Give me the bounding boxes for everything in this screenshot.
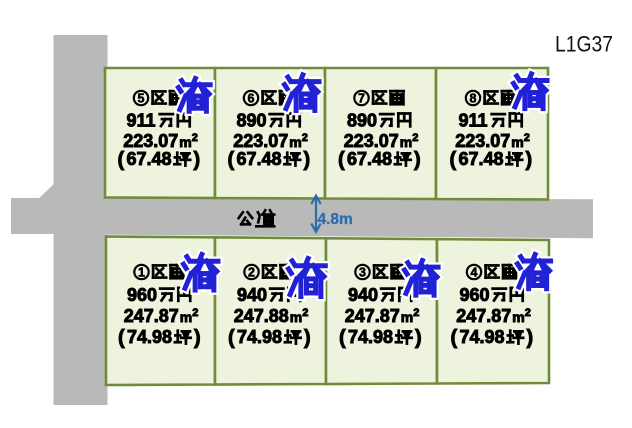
svg-text:): ): [194, 327, 201, 349]
svg-text:74.98: 74.98: [127, 327, 172, 347]
svg-text:6: 6: [248, 91, 255, 105]
svg-text:): ): [526, 149, 533, 171]
svg-text:67.48: 67.48: [236, 149, 281, 169]
svg-text:8: 8: [470, 91, 477, 105]
svg-text:911: 911: [126, 110, 155, 130]
svg-text:): ): [414, 149, 421, 171]
svg-text:m: m: [511, 134, 523, 150]
svg-text:2: 2: [524, 132, 530, 144]
svg-text:2: 2: [525, 307, 531, 319]
svg-text:(: (: [450, 327, 457, 349]
svg-text:(: (: [117, 149, 124, 171]
svg-text:223.07: 223.07: [455, 131, 510, 151]
svg-text:(: (: [339, 327, 346, 349]
svg-text:247.87: 247.87: [345, 306, 400, 326]
svg-text:(: (: [118, 327, 125, 349]
svg-text:223.07: 223.07: [233, 131, 288, 151]
svg-text:247.87: 247.87: [124, 306, 179, 326]
svg-text:5: 5: [138, 91, 145, 105]
svg-text:2: 2: [302, 307, 308, 319]
svg-text:223.07: 223.07: [344, 131, 399, 151]
svg-text:223.07: 223.07: [123, 131, 178, 151]
svg-text:(: (: [227, 149, 234, 171]
svg-text:74.98: 74.98: [459, 327, 504, 347]
svg-text:67.48: 67.48: [126, 149, 171, 169]
svg-text:): ): [194, 149, 201, 171]
svg-text:1: 1: [138, 265, 145, 279]
svg-text:m: m: [401, 309, 413, 325]
svg-text:m: m: [289, 134, 301, 150]
svg-text:2: 2: [412, 132, 418, 144]
svg-text:2: 2: [192, 132, 198, 144]
svg-text:74.98: 74.98: [348, 327, 393, 347]
svg-text:7: 7: [358, 91, 365, 105]
svg-text:247.88: 247.88: [234, 306, 289, 326]
svg-text:247.87: 247.87: [456, 306, 511, 326]
svg-text:): ): [527, 327, 534, 349]
svg-text:911: 911: [458, 110, 487, 130]
svg-text:3: 3: [359, 265, 366, 279]
svg-text:m: m: [180, 309, 192, 325]
svg-text:): ): [304, 327, 311, 349]
svg-text:4.8m: 4.8m: [318, 211, 353, 228]
svg-text:m: m: [179, 134, 191, 150]
svg-text:940: 940: [348, 285, 378, 305]
svg-text:890: 890: [236, 110, 266, 130]
svg-text:2: 2: [248, 265, 255, 279]
svg-text:890: 890: [347, 110, 377, 130]
svg-text:m: m: [400, 134, 412, 150]
svg-text:74.98: 74.98: [237, 327, 282, 347]
svg-text:940: 940: [237, 285, 267, 305]
svg-text:(: (: [449, 149, 456, 171]
svg-text:2: 2: [192, 307, 198, 319]
svg-text:m: m: [512, 309, 524, 325]
svg-text:960: 960: [127, 285, 157, 305]
svg-text:67.48: 67.48: [458, 149, 503, 169]
svg-text:2: 2: [302, 132, 308, 144]
svg-text:4: 4: [471, 265, 478, 279]
svg-text:2: 2: [413, 307, 419, 319]
svg-text:): ): [415, 327, 422, 349]
svg-text:960: 960: [459, 285, 489, 305]
svg-text:(: (: [338, 149, 345, 171]
svg-text:): ): [304, 149, 311, 171]
svg-text:L1G37: L1G37: [555, 32, 613, 57]
svg-text:(: (: [228, 327, 235, 349]
svg-text:67.48: 67.48: [347, 149, 392, 169]
svg-text:m: m: [290, 309, 302, 325]
